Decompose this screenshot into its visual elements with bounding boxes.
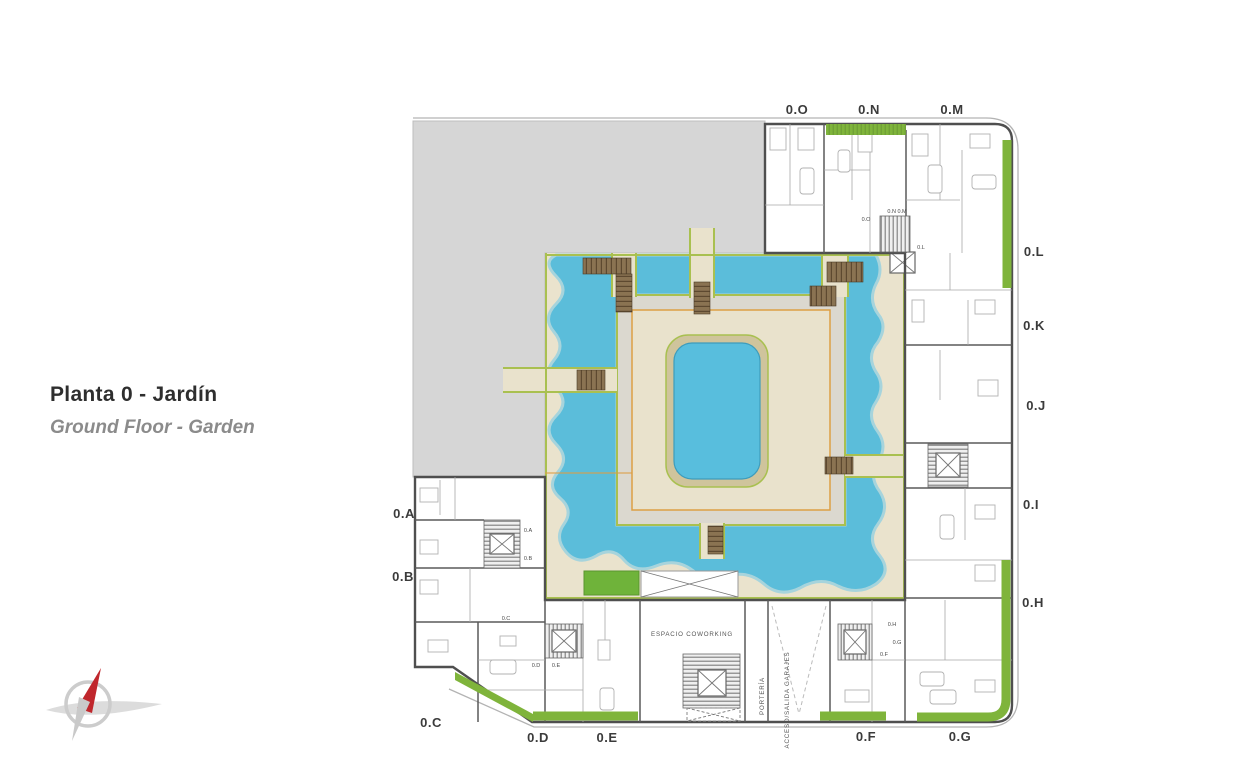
- central-pool: [674, 343, 760, 479]
- green-strip-north: [826, 124, 906, 135]
- door-label-0L: 0.L: [917, 245, 925, 251]
- door-label-0A: 0.A: [524, 528, 533, 534]
- door-label-0H: 0.H: [888, 622, 897, 628]
- door-label-0O: 0.O: [862, 217, 872, 223]
- unit-label-0F: 0.F: [856, 729, 876, 744]
- unit-label-0A: 0.A: [393, 506, 415, 521]
- unit-label-0D: 0.D: [527, 730, 549, 745]
- door-label-0G: 0.G: [893, 640, 902, 646]
- unit-label-0N: 0.N: [858, 102, 880, 117]
- unit-label-0B: 0.B: [392, 569, 414, 584]
- floorplan-drawing: 0.O 0.N 0.M 0.L 0.K 0.J 0.I 0.H 0.A 0.B …: [0, 0, 1241, 780]
- door-label-0C: 0.C: [502, 616, 511, 622]
- courtyard-garden: [503, 228, 915, 600]
- door-label-0D: 0.D: [532, 663, 541, 669]
- floorplan-page: Planta 0 - Jardín Ground Floor - Garden: [0, 0, 1241, 780]
- door-label-0E: 0.E: [552, 663, 561, 669]
- unit-label-0M: 0.M: [940, 102, 963, 117]
- unit-label-0O: 0.O: [786, 102, 808, 117]
- unit-label-0K: 0.K: [1023, 318, 1045, 333]
- skylight: [641, 571, 738, 597]
- coworking-label: ESPACIO COWORKING: [651, 631, 733, 638]
- unit-label-0J: 0.J: [1026, 398, 1046, 413]
- unit-label-0H: 0.H: [1022, 595, 1044, 610]
- unit-label-0E: 0.E: [596, 730, 617, 745]
- porteria-label: PORTERÍA: [759, 677, 766, 715]
- lawn-patch: [584, 571, 639, 595]
- door-label-0B: 0.B: [524, 556, 533, 562]
- unit-label-0G: 0.G: [949, 729, 971, 744]
- unit-label-0C: 0.C: [420, 715, 442, 730]
- door-label-0N-0M: 0.N 0.M: [887, 209, 907, 215]
- garage-label: ACCESO/SALIDA GARAJES: [784, 652, 791, 749]
- elevator-north: [890, 252, 915, 273]
- door-label-0F: 0.F: [880, 652, 889, 658]
- unit-label-0I: 0.I: [1023, 497, 1039, 512]
- unit-label-0L: 0.L: [1024, 244, 1044, 259]
